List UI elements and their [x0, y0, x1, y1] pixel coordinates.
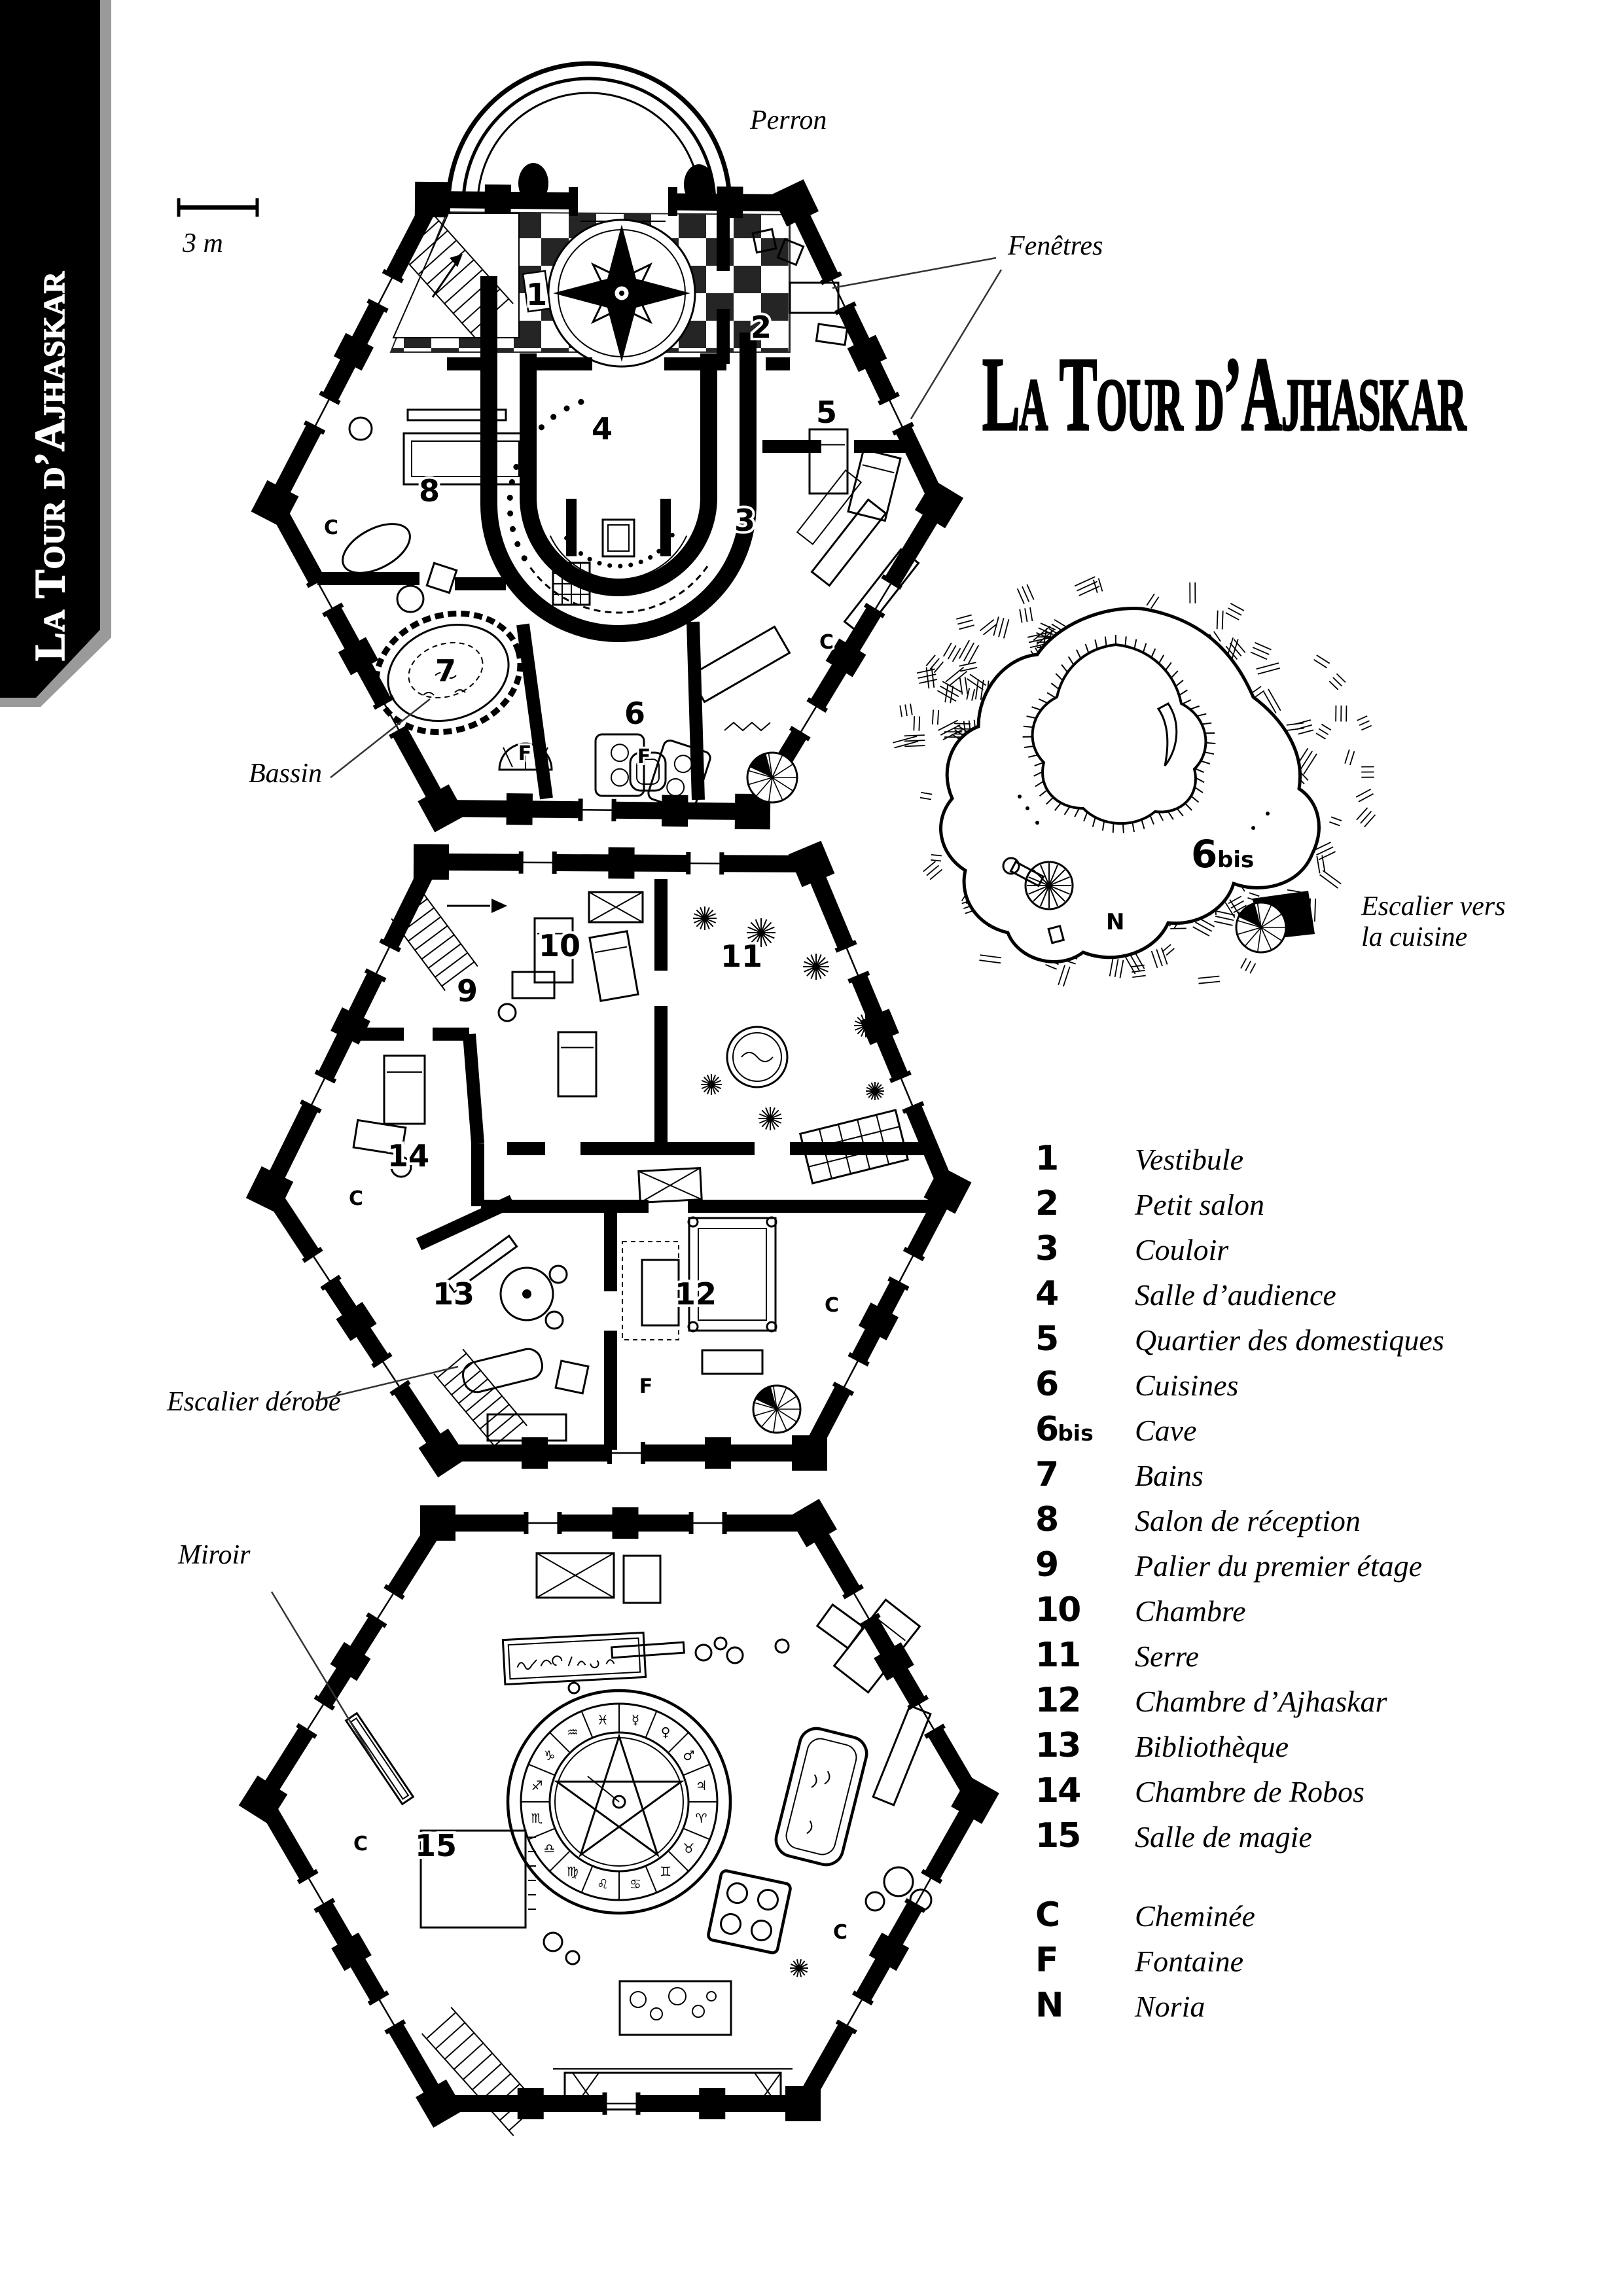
room-number-7: 7	[435, 653, 456, 689]
legend-number: 14	[1035, 1768, 1135, 1814]
spiral-stair	[753, 1386, 800, 1433]
compass-rose	[548, 220, 695, 367]
room-number-10: 10	[539, 928, 580, 963]
legend-number: 5	[1035, 1317, 1135, 1362]
sidebar-title: La Tour d’Ajhaskar	[14, 270, 86, 662]
legend-label: Fontaine	[1135, 1939, 1243, 1984]
legend-label: Cave	[1135, 1408, 1197, 1453]
legend-row: 12Chambre d’Ajhaskar	[1035, 1678, 1611, 1723]
legend-label: Salle de magie	[1135, 1814, 1312, 1859]
legend-label: Chambre	[1135, 1588, 1246, 1634]
legend-number: C	[1035, 1893, 1135, 1938]
letter-noria: N	[1106, 909, 1124, 935]
legend-label: Salon de réception	[1135, 1498, 1361, 1543]
room-number-6bis-suffix: bis	[1217, 847, 1254, 873]
legend-row: 11Serre	[1035, 1633, 1611, 1678]
legend-letter-list: CCheminéeFFontaineNNoria	[1035, 1893, 1611, 2028]
legend-number: N	[1035, 1983, 1135, 2028]
svg-text:♌: ♌	[597, 1876, 609, 1892]
room-number-11: 11	[721, 939, 762, 974]
callout-bassin: Bassin	[249, 758, 322, 789]
plan-second-floor: ♈♉♊♋♌♍♎♏♐♑♒♓☿♀♂♃	[245, 1515, 998, 2229]
letter-cheminee: C	[825, 1294, 839, 1317]
legend-label: Serre	[1135, 1634, 1199, 1679]
room-number-6bis: 6	[1191, 832, 1217, 876]
legend-number: 6	[1035, 1362, 1135, 1407]
legend-label: Bibliothèque	[1135, 1724, 1289, 1769]
callout-escalier-derobe: Escalier dérobé	[167, 1386, 341, 1418]
legend-row: FFontaine	[1035, 1938, 1611, 1983]
svg-text:♊: ♊	[660, 1863, 671, 1879]
room-number-5: 5	[816, 395, 837, 430]
legend-label: Cuisines	[1135, 1363, 1238, 1408]
legend-label: Petit salon	[1135, 1182, 1264, 1227]
svg-text:♈: ♈	[696, 1810, 707, 1826]
legend-label: Palier du premier étage	[1135, 1543, 1422, 1588]
legend-label: Vestibule	[1135, 1137, 1243, 1182]
legend-number: 9	[1035, 1543, 1135, 1588]
svg-text:☿: ☿	[632, 1712, 639, 1727]
legend-number: 11	[1035, 1633, 1135, 1678]
legend-number: 1	[1035, 1136, 1135, 1181]
svg-text:♐: ♐	[531, 1778, 543, 1793]
legend-row: 10Chambre	[1035, 1588, 1611, 1633]
letter-cheminee: C	[349, 1187, 363, 1210]
legend-row: 6Cuisines	[1035, 1362, 1611, 1407]
callout-perron: Perron	[750, 105, 827, 136]
letter-cheminee: C	[819, 631, 834, 654]
legend-number: 15	[1035, 1814, 1135, 1859]
legend-row: 5Quartier des domestiques	[1035, 1317, 1611, 1362]
legend-row: 4Salle d’audience	[1035, 1272, 1611, 1317]
legend-number: 10	[1035, 1588, 1135, 1633]
svg-text:♃: ♃	[696, 1778, 707, 1793]
perron-steps	[448, 63, 730, 205]
svg-text:♍: ♍	[567, 1863, 579, 1879]
svg-text:♓: ♓	[597, 1712, 609, 1727]
legend-number: 7	[1035, 1452, 1135, 1498]
room-number-6: 6	[624, 696, 645, 731]
legend-row: 13Bibliothèque	[1035, 1723, 1611, 1768]
legend-row: 3Couloir	[1035, 1227, 1611, 1272]
svg-text:♋: ♋	[630, 1876, 641, 1892]
svg-text:♒: ♒	[567, 1725, 579, 1740]
legend-number: 3	[1035, 1227, 1135, 1272]
room-number-14: 14	[387, 1138, 429, 1174]
callout-escalier-cuisine: Escalier vers la cuisine	[1361, 891, 1505, 953]
legend-label: Quartier des domestiques	[1135, 1318, 1444, 1363]
legend-number: 6bis	[1035, 1407, 1135, 1456]
svg-text:♂: ♂	[683, 1748, 694, 1763]
legend-row: 8Salon de réception	[1035, 1498, 1611, 1543]
legend-row: 2Petit salon	[1035, 1181, 1611, 1227]
svg-text:♏: ♏	[531, 1810, 543, 1826]
plan-first-floor: 9 10 11 12 13 14 C C F	[252, 841, 991, 1535]
legend-label: Chambre d’Ajhaskar	[1135, 1679, 1387, 1724]
spiral-stair	[747, 753, 797, 802]
legend-row: 7Bains	[1035, 1452, 1611, 1498]
legend-number-suffix: bis	[1058, 1420, 1094, 1446]
room-number-8: 8	[419, 473, 440, 509]
room-number-1: 1	[526, 277, 547, 312]
scale-label: 3 m	[182, 228, 223, 259]
legend-label: Bains	[1135, 1453, 1204, 1498]
magic-circle: ♈♉♊♋♌♍♎♏♐♑♒♓☿♀♂♃	[508, 1691, 730, 1913]
callout-miroir: Miroir	[178, 1539, 250, 1571]
legend-label: Chambre de Robos	[1135, 1769, 1364, 1814]
legend-label: Cheminée	[1135, 1893, 1255, 1939]
legend-number: 2	[1035, 1181, 1135, 1227]
letter-cheminee: C	[324, 516, 338, 539]
room-number-15: 15	[415, 1828, 457, 1863]
legend-row: NNoria	[1035, 1983, 1611, 2028]
spiral-stair-to-kitchen	[1236, 903, 1286, 952]
legend-label: Couloir	[1135, 1227, 1228, 1272]
svg-text:♎: ♎	[544, 1840, 556, 1856]
callout-fenetres: Fenêtres	[1008, 230, 1103, 262]
room-number-2: 2	[751, 310, 772, 345]
legend-number: 12	[1035, 1678, 1135, 1723]
letter-fontaine: F	[639, 1375, 653, 1398]
room-number-12: 12	[675, 1276, 717, 1312]
legend-row: 15Salle de magie	[1035, 1814, 1611, 1859]
svg-text:♉: ♉	[683, 1840, 694, 1856]
legend-row: 6bisCave	[1035, 1407, 1611, 1452]
room-number-13: 13	[433, 1276, 474, 1312]
legend: 1Vestibule2Petit salon3Couloir4Salle d’a…	[1035, 1136, 1611, 2028]
legend-number: F	[1035, 1938, 1135, 1983]
legend-number: 8	[1035, 1498, 1135, 1543]
legend-row: 1Vestibule	[1035, 1136, 1611, 1181]
legend-row: CCheminée	[1035, 1893, 1611, 1938]
legend-row: 14Chambre de Robos	[1035, 1768, 1611, 1814]
legend-row: 9Palier du premier étage	[1035, 1543, 1611, 1588]
letter-fontaine: F	[637, 745, 651, 768]
letter-cheminee: C	[833, 1921, 847, 1944]
letter-fontaine: F	[518, 742, 532, 765]
legend-number: 4	[1035, 1272, 1135, 1317]
room-number-3: 3	[734, 503, 755, 538]
page-title: La Tour d’Ajhaskar	[967, 331, 1480, 459]
letter-cheminee: C	[353, 1833, 368, 1856]
room-number-4: 4	[592, 411, 613, 446]
svg-text:♀: ♀	[661, 1725, 671, 1740]
svg-text:♑: ♑	[544, 1748, 556, 1763]
book-page: La Tour d’Ajhaskar 3 m	[0, 0, 1623, 2296]
legend-label: Noria	[1135, 1984, 1205, 2029]
legend-number: 13	[1035, 1723, 1135, 1768]
legend-room-list: 1Vestibule2Petit salon3Couloir4Salle d’a…	[1035, 1136, 1611, 1859]
legend-label: Salle d’audience	[1135, 1272, 1336, 1318]
room-number-9: 9	[457, 973, 478, 1009]
